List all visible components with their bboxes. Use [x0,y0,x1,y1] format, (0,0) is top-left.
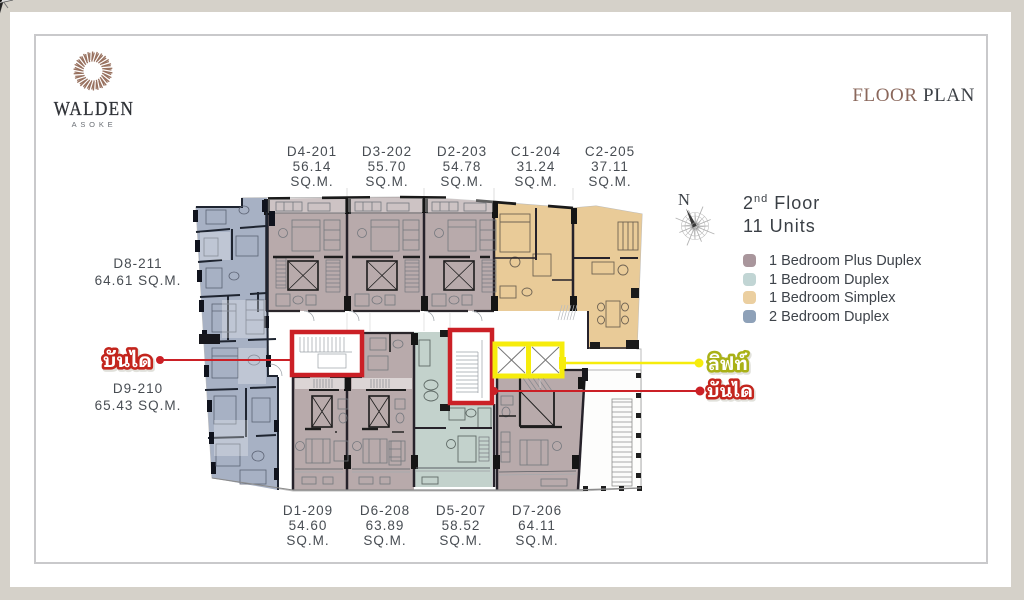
svg-text:N: N [678,190,690,209]
